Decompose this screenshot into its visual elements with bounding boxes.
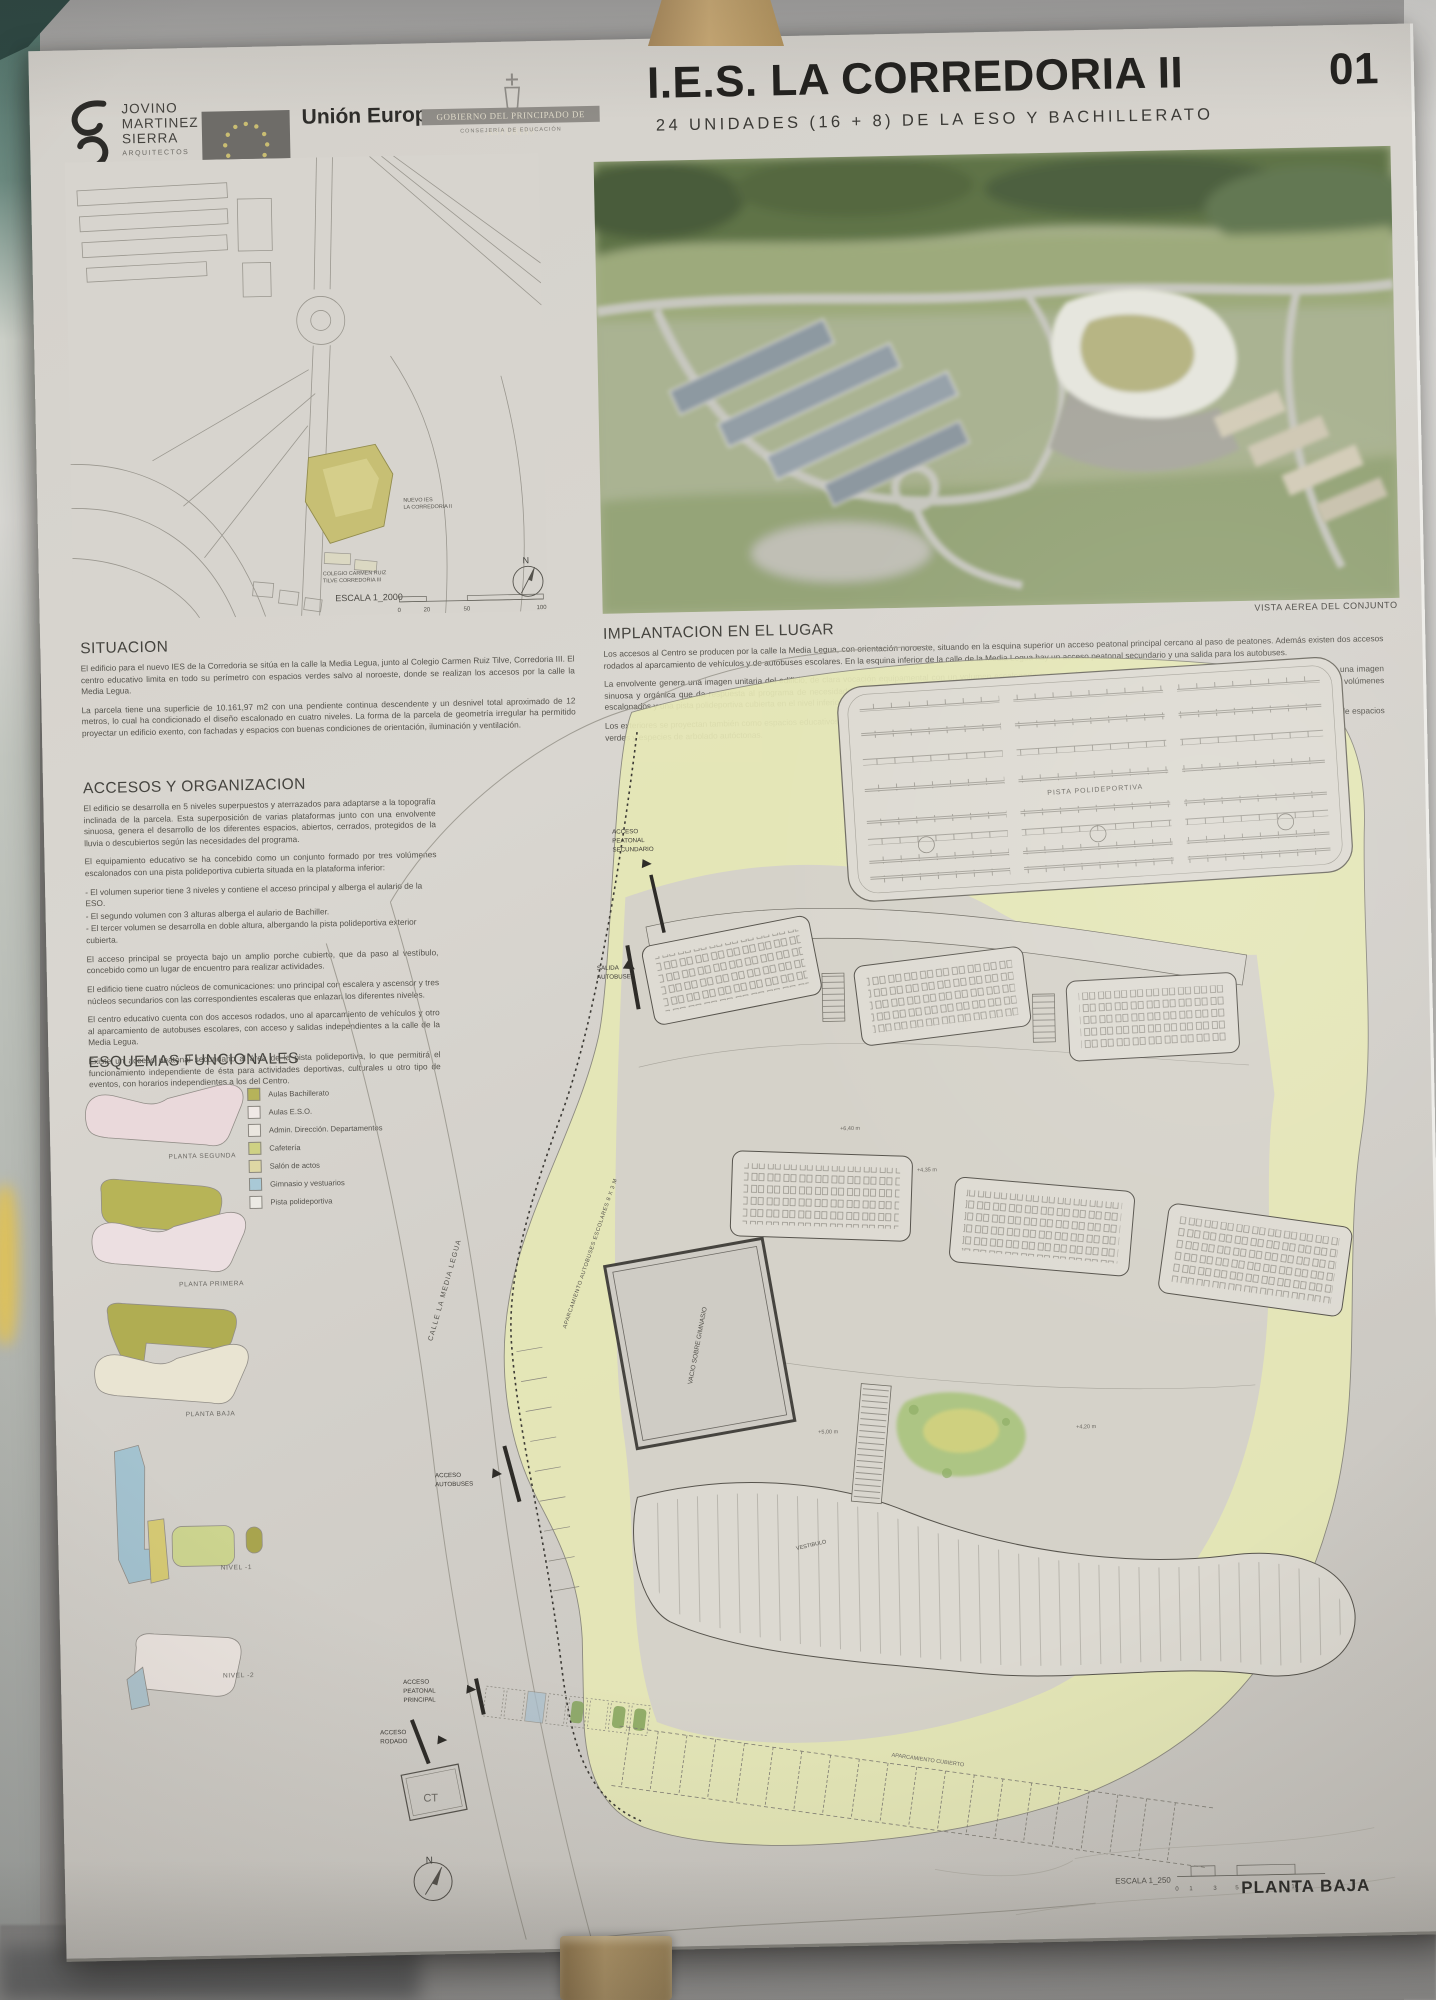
plan-sheet-title: PLANTA BAJA xyxy=(1241,1876,1370,1898)
acceso-autobuses-label: AUTOBUSES xyxy=(435,1481,473,1489)
plan-scale-label: ESCALA 1_250 xyxy=(1115,1876,1171,1886)
map-scale-label: ESCALA 1_2000 xyxy=(335,592,403,603)
arrow-icon xyxy=(492,1468,502,1478)
access-gate-bar xyxy=(476,1678,484,1714)
page-title: I.E.S. LA CORREDORIA II xyxy=(647,48,1184,109)
sheet-number: 01 xyxy=(1328,44,1379,95)
plan-scale-tick: 0 xyxy=(1175,1887,1179,1893)
aerial-view-image xyxy=(594,146,1400,614)
map-label-nuevo: LA CORREDORIA II xyxy=(403,504,452,511)
level-mark: +4,35 m xyxy=(917,1167,938,1173)
presentation-board: JOVINO MARTINEZ SIERRA ARQUITECTOS Unión… xyxy=(28,23,1436,1961)
level-label: PLANTA SEGUNDA xyxy=(168,1152,236,1160)
level-label: PLANTA BAJA xyxy=(186,1410,236,1418)
acceso-peatonal-principal-label: PEATONAL xyxy=(403,1687,436,1695)
photo-scene: JOVINO MARTINEZ SIERRA ARQUITECTOS Unión… xyxy=(0,0,1436,2000)
map-tick: 50 xyxy=(464,606,471,612)
acceso-rodado-label: ACCESO xyxy=(380,1729,406,1737)
site-location-map: NUEVO IES LA CORREDORIA II COLEGIO CARME… xyxy=(65,153,548,620)
floor-plan: PISTA POLIDEPORTIVA xyxy=(290,622,1426,1944)
access-gate-bar xyxy=(412,1720,429,1764)
acceso-peatonal-principal-label: PRINCIPAL xyxy=(403,1696,436,1704)
easel-clamp xyxy=(648,0,784,46)
level-mark: +4,20 m xyxy=(1076,1424,1097,1430)
acceso-peatonal-principal-label: ACCESO xyxy=(403,1679,429,1687)
acceso-peatonal-secundario-label: PEATONAL xyxy=(612,837,645,845)
map-tick: 20 xyxy=(424,607,431,613)
sheet-title-row: I.E.S. LA CORREDORIA II 01 xyxy=(647,44,1380,109)
asturias-emblem xyxy=(499,71,526,112)
salida-autobuses-label: AUTOBUSES xyxy=(597,973,635,981)
level-mark: +5,00 m xyxy=(818,1429,839,1435)
esquemas-diagrams: PLANTA SEGUNDA PLANTA PRIMERA PLANTA BAJ… xyxy=(79,1076,302,1720)
map-north-label: N xyxy=(522,555,529,565)
pista-polideportiva: PISTA POLIDEPORTIVA xyxy=(836,656,1354,903)
plan-north-label: N xyxy=(426,1855,433,1866)
level-label: NIVEL -1 xyxy=(221,1564,252,1572)
page-subtitle: 24 UNIDADES (16 + 8) DE LA ESO Y BACHILL… xyxy=(656,105,1214,135)
arrow-icon xyxy=(466,1685,476,1694)
contour-lines xyxy=(934,1827,1396,1916)
level-mark: +6,40 m xyxy=(840,1126,861,1132)
ct-label: CT xyxy=(423,1792,438,1804)
access-gate-bar xyxy=(504,1446,519,1502)
gym-hall: VACIO SOBRE GIMNASIO xyxy=(604,1238,795,1449)
plan-north-arrow: N xyxy=(414,1855,453,1901)
background-highlight xyxy=(0,1185,18,1345)
map-label-nuevo: NUEVO IES xyxy=(403,497,433,504)
plan-scale-tick: 5 xyxy=(1235,1885,1239,1891)
aerial-school-building xyxy=(1046,287,1240,473)
street-label: CALLE LA MEDIA LEGUA xyxy=(427,1238,463,1342)
plan-scale-tick: 1 xyxy=(1189,1886,1193,1892)
map-label-colegio: TILVE CORREDORIA III xyxy=(323,577,381,584)
arrow-icon xyxy=(437,1735,447,1744)
acceso-autobuses-label: ACCESO xyxy=(435,1472,461,1480)
level-label: NIVEL -2 xyxy=(223,1672,254,1680)
easel-leg xyxy=(560,1936,672,2000)
acceso-peatonal-secundario-label: ACCESO xyxy=(612,828,638,836)
level-label: PLANTA PRIMERA xyxy=(179,1280,244,1288)
acceso-rodado-label: RODADO xyxy=(380,1738,407,1746)
map-tick: 100 xyxy=(536,605,547,611)
plan-scale-tick: 3 xyxy=(1213,1886,1217,1892)
salida-autobuses-label: SALIDA xyxy=(597,965,620,972)
acceso-peatonal-secundario-label: SECUNDARIO xyxy=(612,846,654,854)
asturias-band: GOBIERNO DEL PRINCIPADO DE ASTURIAS xyxy=(422,106,600,126)
